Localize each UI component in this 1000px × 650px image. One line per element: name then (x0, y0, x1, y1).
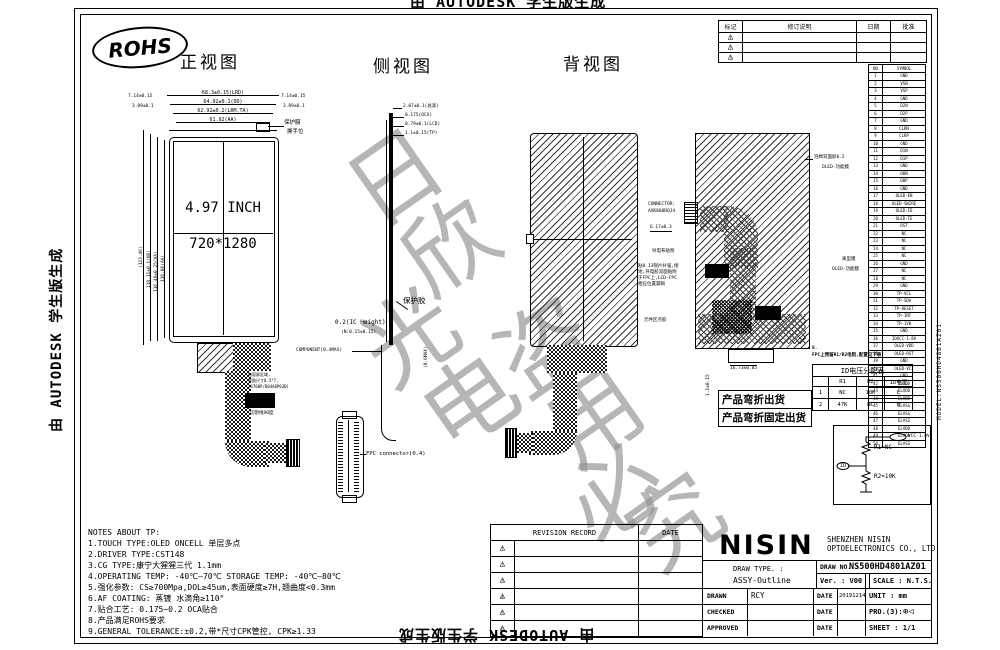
pin-number: 8 (869, 125, 883, 133)
pin-row: 10 GND (869, 140, 926, 148)
pin-symbol: GND (883, 283, 926, 291)
revision-mark-cell: △4 (491, 589, 515, 605)
revision-triangle-icon: △3 (728, 53, 733, 62)
company-name-1: SHENZHEN NISIN (827, 535, 890, 544)
pin-row: 34 TP-1V8 (869, 320, 926, 328)
schematic-vcc-label: VCC-1.8V (908, 434, 930, 440)
pin-symbol: IOVCC-1.8V (883, 335, 926, 343)
front-fpc-stiffener (197, 343, 235, 373)
pin-symbol: ELVSS (883, 418, 926, 426)
pin-number: 16 (869, 185, 883, 193)
ship-note-box: 产品弯折出货 产品弯折固定出货 (718, 390, 812, 427)
pin-number: 2 (869, 80, 883, 88)
pin-number: 37 (869, 343, 883, 351)
back-detail-component2 (755, 306, 781, 320)
title-block: NISIN SHENZHEN NISIN OPTOELECTRONICS CO.… (702, 524, 932, 636)
revision-triangle-icon: △2 (500, 560, 505, 569)
pin-symbol: NC (883, 275, 926, 283)
note-line: 8.产品满足ROHS要求 (88, 615, 341, 626)
front-tear-label: 撕手位 (287, 129, 304, 135)
id-h2: R2 (857, 377, 885, 387)
pin-number: 36 (869, 335, 883, 343)
pin-number: 10 (869, 140, 883, 148)
pin-number: 13 (869, 163, 883, 171)
pin-col-symbol: SYMBOL (883, 65, 926, 73)
back-centerline-h (534, 239, 632, 240)
front-dim-side-r1: 7.14±0.15 (281, 94, 305, 100)
revision-record-row: △4 (491, 589, 703, 605)
back-connector-dim: 6.17±0.3 (650, 225, 672, 232)
pin-symbol: D1N (883, 148, 926, 156)
pin-number: 25 (869, 253, 883, 261)
revision-record-date: DATE (639, 525, 703, 541)
pin-number: 31 (869, 298, 883, 306)
front-fpc-note: 电容屏区域,背胶尺寸0.5*7,(6700P/D04A0P03B) (248, 372, 289, 390)
pin-symbol: OLED-RST (883, 350, 926, 358)
revision-triangle-icon: △5 (500, 608, 505, 617)
pin-symbol: GND (883, 95, 926, 103)
pro-label: PRO.(3): (869, 608, 903, 616)
back-release-label1: 离型膜 (842, 257, 856, 263)
ship-note-2: 产品弯折固定出货 (719, 409, 811, 426)
draw-type-value: ASSY-Outline (733, 576, 791, 585)
side-tick4 (393, 135, 404, 136)
revision-mark-cell: △6 (491, 621, 515, 637)
back-panel (530, 133, 638, 347)
back-copper-note: 贴0.13铜片补强,接地,导电胶双面贴附于FPC上,LCD-FPC相应位置漏铜 (638, 264, 679, 288)
note-line: 7.贴合工艺: 0.175~0.2 OCA贴合 (88, 604, 341, 615)
pin-symbol: OLED-EN (883, 193, 926, 201)
front-vdim-line4 (164, 140, 165, 338)
pin-symbol: D0N (883, 170, 926, 178)
pin-symbol: NC (883, 253, 926, 261)
side-fpc-hook (381, 345, 396, 441)
back-film-leader (805, 159, 813, 160)
pin-row: 31 TP-SDA (869, 298, 926, 306)
pin-row: 13 GND (869, 163, 926, 171)
pin-number: 12 (869, 155, 883, 163)
pin-symbol: TP-SDA (883, 298, 926, 306)
sheet-value: SHEET : 1/1 (869, 624, 915, 632)
pin-number: 22 (869, 230, 883, 238)
front-vdim-label4: 116.06(AA) (161, 255, 166, 282)
front-vdim-line2 (150, 134, 151, 341)
back-bottom-connector (728, 349, 774, 363)
id-h0 (813, 377, 829, 387)
rev-col-appr: 批准 (891, 21, 927, 33)
pin-symbol: TP-VCL (883, 290, 926, 298)
side-stack-dim4: 1.1±0.15(TP) (405, 131, 438, 137)
approved-label: APPROVED (707, 624, 738, 632)
front-res-text: 720*1280 (169, 236, 277, 252)
pin-row: 30 TP-VCL (869, 290, 926, 298)
side-connector-teeth-right (354, 420, 359, 492)
pin-row: 36 IOVCC-1.8V (869, 335, 926, 343)
checked-label: CHECKED (707, 608, 734, 616)
pin-number: 30 (869, 290, 883, 298)
side-component-label: COMPONENT(0.4MAX) (296, 348, 342, 354)
pin-row: 8 CLKN (869, 125, 926, 133)
revision-mark-cell: △1 (491, 541, 515, 557)
side-glue-label: 保护胶 (403, 295, 426, 306)
revision-record-title: REVISION RECORD (491, 525, 639, 541)
front-film-label: 保护膜 (284, 120, 301, 126)
front-view-title: 正视图 (180, 48, 240, 73)
pin-number: 23 (869, 238, 883, 246)
pin-row: 46 ELVSS (869, 410, 926, 418)
pin-symbol: GND (883, 140, 926, 148)
annotation-line: 相应位置漏铜 (638, 282, 679, 288)
side-film-line (386, 120, 387, 342)
revision-triangle-icon: △3 (500, 576, 505, 585)
back-bottom-dim: 16.73±0.05 (730, 365, 757, 372)
pin-number: 4 (869, 95, 883, 103)
rev-col-mark: 标记 (719, 21, 743, 33)
projection-symbol-icon: ⊕◁ (903, 607, 914, 617)
side-max-label: (0.6MAX) (424, 346, 430, 368)
draw-type-label: DRAW TYPE. : (733, 565, 784, 573)
pin-symbol: NC (883, 268, 926, 276)
schematic-id-label: ID (840, 463, 846, 469)
back-view-title: 背视图 (563, 50, 623, 75)
id-r0c2: 10K (857, 387, 885, 399)
side-tick1 (393, 108, 402, 109)
revision-record-row: △5 (491, 605, 703, 621)
pin-number: 3 (869, 88, 883, 96)
side-connector-leader (360, 454, 366, 455)
pin-row: 22 NC (869, 230, 926, 238)
front-fpc-arm (264, 443, 288, 463)
pin-row: 33 TP-INT (869, 313, 926, 321)
nisin-logo: NISIN (719, 530, 814, 561)
side-stack-dim1: 2.07±0.1(总高) (403, 104, 439, 110)
schematic-r2-label: R2=10K (874, 474, 896, 480)
pin-symbol: D1P (883, 155, 926, 163)
revision-triangle-icon: △2 (728, 43, 733, 52)
back-film-label2: OLED-功能膜 (822, 165, 849, 171)
pin-row: 18 OLED-SWIRE (869, 200, 926, 208)
company-name-2: OPTOELECTRONICS CO., LTD (827, 544, 935, 553)
pin-row: 11 D1N (869, 148, 926, 156)
side-ic-height: 0.2(IC Height) (335, 319, 386, 326)
draw-no-value: NS500HD4801AZ01 (849, 562, 926, 572)
pin-symbol: NC (883, 238, 926, 246)
back-detail-connector (684, 202, 698, 224)
pin-row: 32 TP-RESET (869, 305, 926, 313)
schematic-r1-label: R1=NC (874, 445, 892, 451)
pin-number: 35 (869, 328, 883, 336)
note-line: 2.DRIVER TYPE:CST148 (88, 549, 341, 560)
back-glue-label: 元件区点胶 (644, 318, 667, 324)
pin-symbol: D0P (883, 178, 926, 186)
revision-record-row: △1 (491, 541, 703, 557)
note-line: 5.强化参数: CS≥700Mpa,DOL≥45um,表面硬度≥7H,翘曲度<0… (88, 582, 341, 593)
pin-row: 2 VSN (869, 80, 926, 88)
revision-row: △2 (719, 43, 927, 53)
back-fpc-connector (505, 428, 517, 458)
note-line: 9.GENERAL TOLERANCE:±0.2,带*尺寸CPK管控, CPK≥… (88, 626, 341, 637)
back-release-label2: OLED-功能膜 (832, 267, 859, 273)
revision-table-top: 标记 修订说明 日期 批准 △1 △2 △3 (718, 20, 927, 63)
pin-number: 1 (869, 73, 883, 81)
side-connector-cap-bottom (342, 495, 357, 503)
pin-number: 14 (869, 170, 883, 178)
note-line: 4.OPERATING TEMP: -40℃—70℃ STORAGE TEMP:… (88, 571, 341, 582)
front-dim-lrm: 62.92±0.2(LRM.TA) (173, 113, 273, 114)
unit-value: UNIT : mm (869, 592, 907, 600)
revision-mark-cell: △2 (491, 557, 515, 573)
model-edge-text: MODEL:NS500HD4801AZ01 (936, 323, 943, 420)
pin-symbol: OLED-ID (883, 208, 926, 216)
side-connector-centerline (348, 420, 349, 492)
pin-symbol: VSP (883, 88, 926, 96)
revision-mark-cell: △5 (491, 605, 515, 621)
back-film-label1: 泡棉双面胶0.2 (814, 155, 845, 161)
revision-row: △1 (719, 33, 927, 43)
pin-number: 47 (869, 418, 883, 426)
pin-row: 5 D2N (869, 103, 926, 111)
pin-symbol: GND (883, 73, 926, 81)
pin-row: 27 NC (869, 268, 926, 276)
pin-row: 14 D0N (869, 170, 926, 178)
pin-row: 21 RST (869, 223, 926, 231)
front-dim-side-r2: 3.89±0.1 (283, 104, 305, 110)
note-line: 1.TOUCH TYPE:OLED ONCELL 单层多点 (88, 538, 341, 549)
pin-row: 35 GND (869, 328, 926, 336)
revision-record-row: △2 (491, 557, 703, 573)
pin-symbol: OLED-TE (883, 215, 926, 223)
back-connector-note1: CONNECTOR: (648, 202, 675, 208)
pin-row: 19 OLED-ID (869, 208, 926, 216)
front-vdim-line3 (157, 137, 158, 341)
front-dim-od: 64.92±0.1(OD) (170, 104, 276, 105)
pin-symbol: GND (883, 260, 926, 268)
pin-symbol: TP-INT (883, 313, 926, 321)
front-fpc-pad (233, 343, 271, 371)
rev-col-desc: 修订说明 (743, 21, 857, 33)
back-bottom-dim2: 1.1±0.15 (706, 374, 712, 396)
pin-number: 7 (869, 118, 883, 126)
pin-symbol: OLED-VDD (883, 343, 926, 351)
pin-number: 33 (869, 313, 883, 321)
pin-row: 12 D1P (869, 155, 926, 163)
pin-symbol: CLKN (883, 125, 926, 133)
pin-row: 15 D0P (869, 178, 926, 186)
pin-number: 17 (869, 193, 883, 201)
side-panel-edge (389, 113, 393, 345)
pin-symbol: GND (883, 328, 926, 336)
note-line: 3.CG TYPE:康宁大猩猩三代 1.1mm (88, 560, 341, 571)
back-detail-stiffener (712, 300, 752, 334)
front-vdim-label1: (123.46) (139, 246, 144, 268)
back-fpc-pad (547, 345, 607, 373)
pin-symbol: GND (883, 163, 926, 171)
autodesk-watermark-top: 由 AUTODESK 学生版生成 (410, 0, 606, 12)
note-line: 6.AF COATING: 蒸镀 水滴角≥110° (88, 593, 341, 604)
pin-number: 34 (869, 320, 883, 328)
side-connector-teeth-left (338, 420, 343, 492)
revision-mark-cell: △3 (719, 53, 743, 63)
front-vdim-label2: 118.11±0.1(OD) (147, 250, 152, 288)
side-ic-tol: (N:0.15±0.15) (341, 330, 376, 336)
revision-mark-cell: △3 (491, 573, 515, 589)
revision-record-table: REVISION RECORD DATE △1 △2 △3 △4 △5 △6 (490, 524, 703, 637)
notes-title: NOTES ABOUT TP: (88, 527, 341, 538)
back-connector-note2: AXK860RQJ4 (648, 209, 675, 215)
front-vdim-line1 (143, 130, 144, 345)
pin-row: 9 CLKP (869, 133, 926, 141)
pin-symbol: GND (883, 185, 926, 193)
pin-row: 1 GND (869, 73, 926, 81)
front-size-text: 4.97 INCH (169, 200, 277, 216)
side-connector-cap-top (342, 411, 357, 419)
front-film-leader (268, 126, 284, 127)
revision-triangle-icon: △6 (500, 624, 505, 633)
id-r0c1: NC (829, 387, 857, 399)
checked-date-label: DATE (817, 608, 833, 616)
ship-note-1: 产品弯折出货 (719, 391, 811, 409)
id-table-title: ID电压分配表 (813, 365, 913, 377)
annotation-line: (6700P/D04A0P03B) (248, 384, 289, 390)
side-stack-dim2: 0.175(OCA) (405, 113, 432, 119)
pin-number: 15 (869, 178, 883, 186)
pin-number: 28 (869, 275, 883, 283)
back-detail-component1 (705, 264, 729, 278)
pin-row: 29 GND (869, 283, 926, 291)
pin-number: 20 (869, 215, 883, 223)
pin-row: 24 NC (869, 245, 926, 253)
id-r1c2: NC (857, 399, 885, 411)
front-centerline-h (173, 233, 273, 234)
front-cut-note: 切割线90度 (250, 411, 273, 417)
revision-mark-cell: △1 (719, 33, 743, 43)
id-r1c0: 2 (813, 399, 829, 411)
pin-number: 6 (869, 110, 883, 118)
id-r0c0: 1 (813, 387, 829, 399)
revision-record-row: △3 (491, 573, 703, 589)
revision-record-row: △6 (491, 621, 703, 637)
id-h3: ID电压 (885, 377, 913, 387)
pin-number: 18 (869, 200, 883, 208)
revision-triangle-icon: △1 (500, 544, 505, 553)
pin-row: 7 GND (869, 118, 926, 126)
pin-col-no: NO (869, 65, 883, 73)
pin-symbol: GND (883, 118, 926, 126)
front-dim-side-l2: 3.89±0.1 (132, 104, 154, 110)
revision-row: △3 (719, 53, 927, 63)
pin-row: 37 OLED-VDD (869, 343, 926, 351)
pin-row: 23 NC (869, 238, 926, 246)
pin-symbol: TP-1V8 (883, 320, 926, 328)
notes-block: NOTES ABOUT TP: 1.TOUCH TYPE:OLED ONCELL… (88, 527, 341, 637)
pin-number: 11 (869, 148, 883, 156)
pin-row: 3 VSP (869, 88, 926, 96)
front-vdim-label3: 116.48±0.25(VA) (154, 251, 159, 292)
pin-symbol: D2P (883, 110, 926, 118)
pin-symbol: NC (883, 230, 926, 238)
pin-symbol: ELVSS (883, 410, 926, 418)
pin-symbol: TP-RESET (883, 305, 926, 313)
pin-row: 16 GND (869, 185, 926, 193)
scale-value: SCALE : N.T.S. (873, 577, 932, 585)
side-tick2 (393, 117, 404, 118)
front-film-tab (256, 123, 270, 132)
side-stack-dim3: 0.79±0.1(LCD) (405, 122, 440, 128)
pin-symbol: D2N (883, 103, 926, 111)
drawn-label: DRAWN (707, 592, 727, 600)
pin-symbol: VSN (883, 80, 926, 88)
revision-mark-cell: △2 (719, 43, 743, 53)
pin-number: 32 (869, 305, 883, 313)
pin-number: 27 (869, 268, 883, 276)
id-note-line2: FPC上预留R1/R2电阻,配置见下表 (812, 353, 881, 359)
side-tick3 (393, 126, 404, 127)
pin-row: 6 D2P (869, 110, 926, 118)
approved-date-label: DATE (817, 624, 833, 632)
drawn-value: RCY (751, 591, 765, 600)
rev-col-date: 日期 (857, 21, 891, 33)
pin-number: 26 (869, 260, 883, 268)
id-r0c3: L (885, 387, 913, 399)
pin-symbol: CLKP (883, 133, 926, 141)
revision-triangle-icon: △1 (728, 33, 733, 42)
pin-row: 28 NC (869, 275, 926, 283)
revision-triangle-icon: △4 (500, 592, 505, 601)
ver-value: Ver. : V00 (820, 577, 862, 585)
back-fpc-tail (553, 373, 577, 431)
pin-number: 9 (869, 133, 883, 141)
back-foam-label: 导电布贴附 (652, 249, 675, 255)
autodesk-watermark-left: 由 AUTODESK 学生版生成 (46, 248, 66, 432)
pin-number: 19 (869, 208, 883, 216)
pin-number: 29 (869, 283, 883, 291)
pin-symbol: OLED-SWIRE (883, 200, 926, 208)
id-h1: R1 (829, 377, 857, 387)
pin-row: 4 GND (869, 95, 926, 103)
front-dim-lrd: 68.3±0.15(LRD) (167, 95, 279, 96)
front-fpc-connector (286, 439, 300, 467)
id-r1c1: 47K (829, 399, 857, 411)
pin-number: 5 (869, 103, 883, 111)
side-connector-label: FPC connector(0.4) (366, 451, 426, 457)
pin-number: 46 (869, 410, 883, 418)
rohs-label: ROHS (107, 33, 172, 62)
front-dim-side-l1: 7.14±0.15 (128, 94, 152, 100)
id-r1c3: H (885, 399, 913, 411)
pin-number: 24 (869, 245, 883, 253)
pin-row: 25 NC (869, 253, 926, 261)
id-note-line1: 8. (812, 346, 817, 352)
side-component-leader (352, 351, 382, 352)
drawn-date-value: 20191214 (839, 593, 866, 599)
pin-row: 47 ELVSS (869, 418, 926, 426)
drawing-sheet: { "frame": { "autodesk_watermark": "由 AU… (0, 0, 1000, 650)
pin-row: 17 OLED-EN (869, 193, 926, 201)
drawn-date-label: DATE (817, 592, 833, 600)
pin-symbol: NC (883, 245, 926, 253)
pin-number: 21 (869, 223, 883, 231)
pin-row: 20 OLED-TE (869, 215, 926, 223)
side-view-title: 侧视图 (373, 52, 433, 77)
id-schematic-box: VCC-1.8V R1=NC R2=10K ID (833, 425, 931, 505)
front-fpc-component (245, 393, 275, 408)
id-voltage-table: ID电压分配表 R1 R2 ID电压 1 NC 10K L 2 47K NC H (812, 364, 913, 411)
back-notch (526, 234, 534, 244)
pin-symbol: RST (883, 223, 926, 231)
pin-row: 26 GND (869, 260, 926, 268)
